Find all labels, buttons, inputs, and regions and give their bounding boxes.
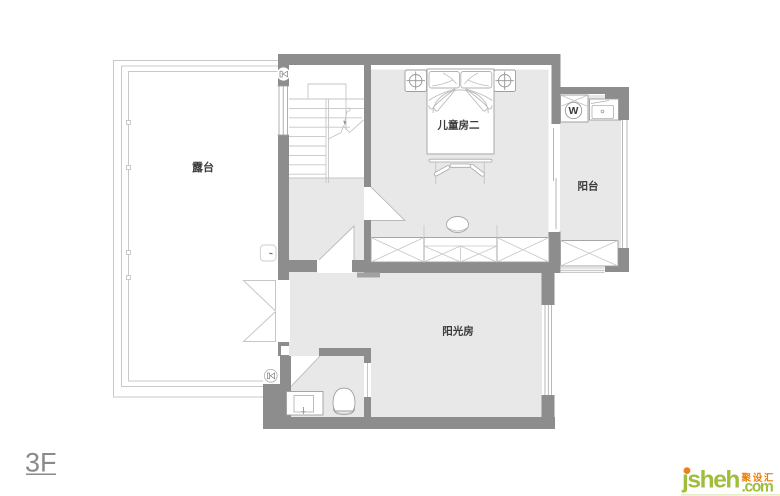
- svg-text:W: W: [569, 105, 579, 117]
- svg-text:儿童房二: 儿童房二: [437, 118, 480, 131]
- svg-text:露台: 露台: [192, 160, 214, 174]
- svg-text:阳光房: 阳光房: [442, 325, 474, 338]
- svg-text:.com: .com: [742, 479, 773, 496]
- svg-text:3F: 3F: [25, 448, 57, 478]
- svg-text:阳台: 阳台: [578, 180, 599, 193]
